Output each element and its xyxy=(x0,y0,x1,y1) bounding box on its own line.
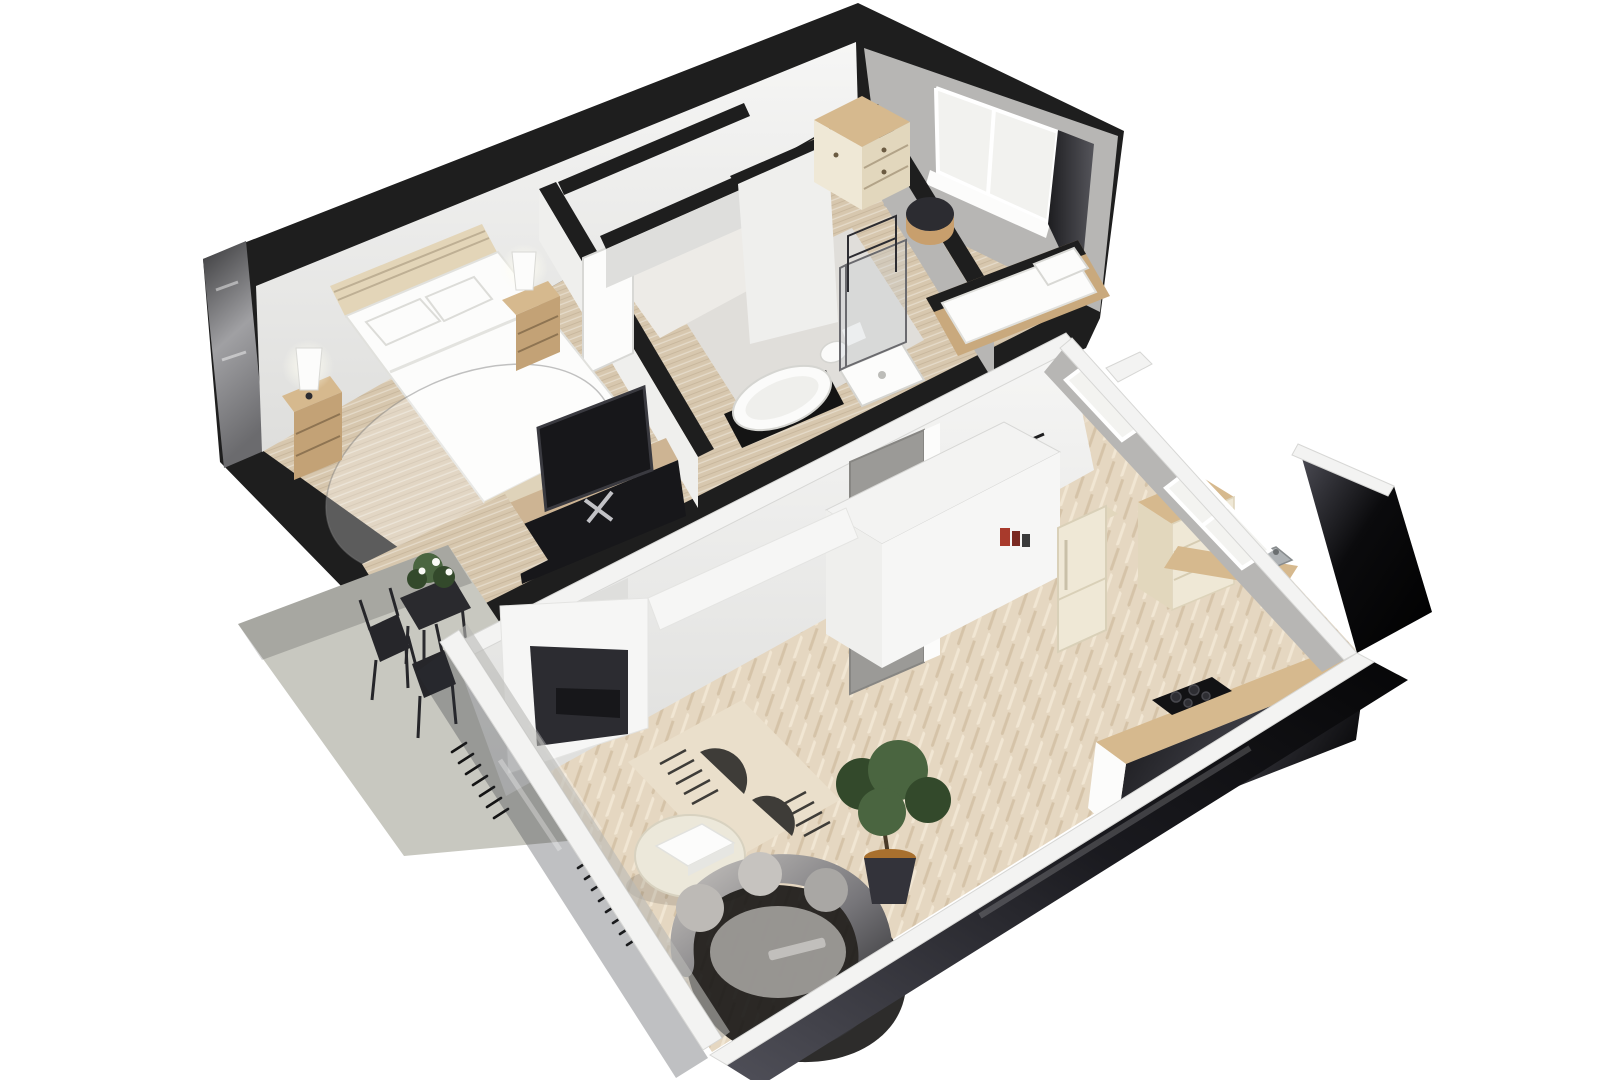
tree-foliage xyxy=(905,777,951,823)
lamp-base xyxy=(306,393,313,400)
floor-plan-svg xyxy=(0,0,1620,1080)
burner xyxy=(1171,692,1181,702)
knob xyxy=(882,148,887,153)
sofa-cushion-2 xyxy=(738,852,782,896)
sofa-cushion-3 xyxy=(804,868,848,912)
lamp-shade xyxy=(512,252,536,290)
shelf-item-dark xyxy=(1022,534,1030,547)
shelf-item-red xyxy=(1000,528,1010,546)
knob xyxy=(882,170,887,175)
faucet xyxy=(1273,549,1279,555)
niche-tv-screen xyxy=(556,688,620,718)
plant-flower xyxy=(446,569,453,576)
burner xyxy=(1184,699,1192,707)
plant-leaves xyxy=(433,566,455,588)
plant-flower xyxy=(432,558,440,566)
bay-cap-notch xyxy=(1106,352,1152,382)
burner xyxy=(1189,685,1199,695)
plant-flower xyxy=(419,568,426,575)
tree-foliage xyxy=(858,788,906,836)
shower-drain xyxy=(878,371,886,379)
pouf-top xyxy=(906,197,954,231)
lamp-shade xyxy=(296,348,322,390)
burner xyxy=(1202,692,1210,700)
knob xyxy=(834,153,839,158)
shelf-item-dark-red xyxy=(1012,531,1020,546)
sofa-cushion-1 xyxy=(676,884,724,932)
bedside-pouf xyxy=(906,197,954,245)
floor-plan-image xyxy=(0,0,1620,1080)
